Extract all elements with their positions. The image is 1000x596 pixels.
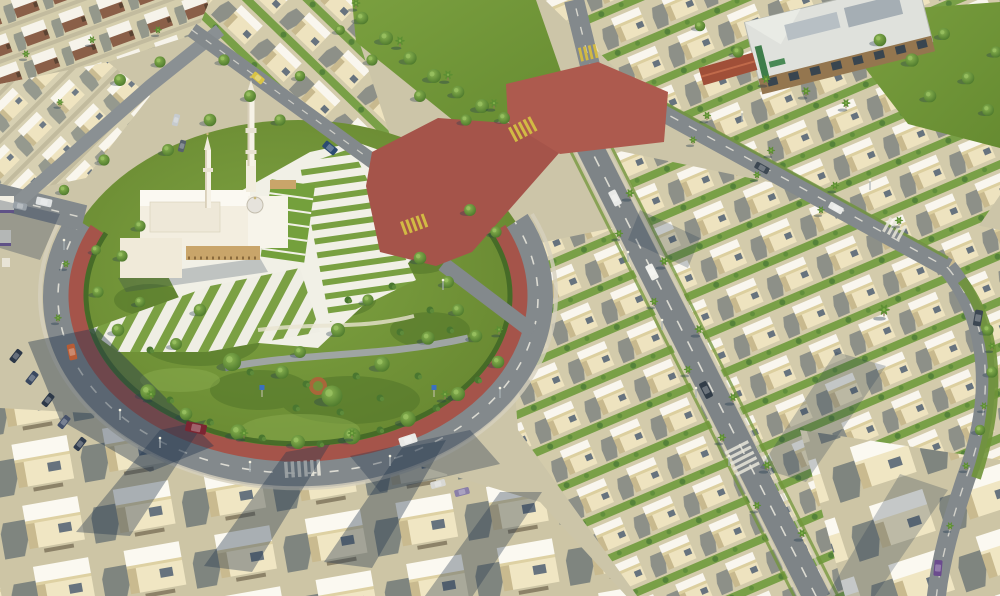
entry-portico — [270, 180, 296, 189]
dome — [247, 197, 263, 213]
aerial-render-canvas — [0, 0, 1000, 596]
aerial-render — [0, 0, 1000, 596]
car — [933, 560, 942, 577]
round-planter-center — [313, 381, 323, 391]
west-wing — [120, 238, 182, 278]
dome-finial — [254, 197, 257, 200]
